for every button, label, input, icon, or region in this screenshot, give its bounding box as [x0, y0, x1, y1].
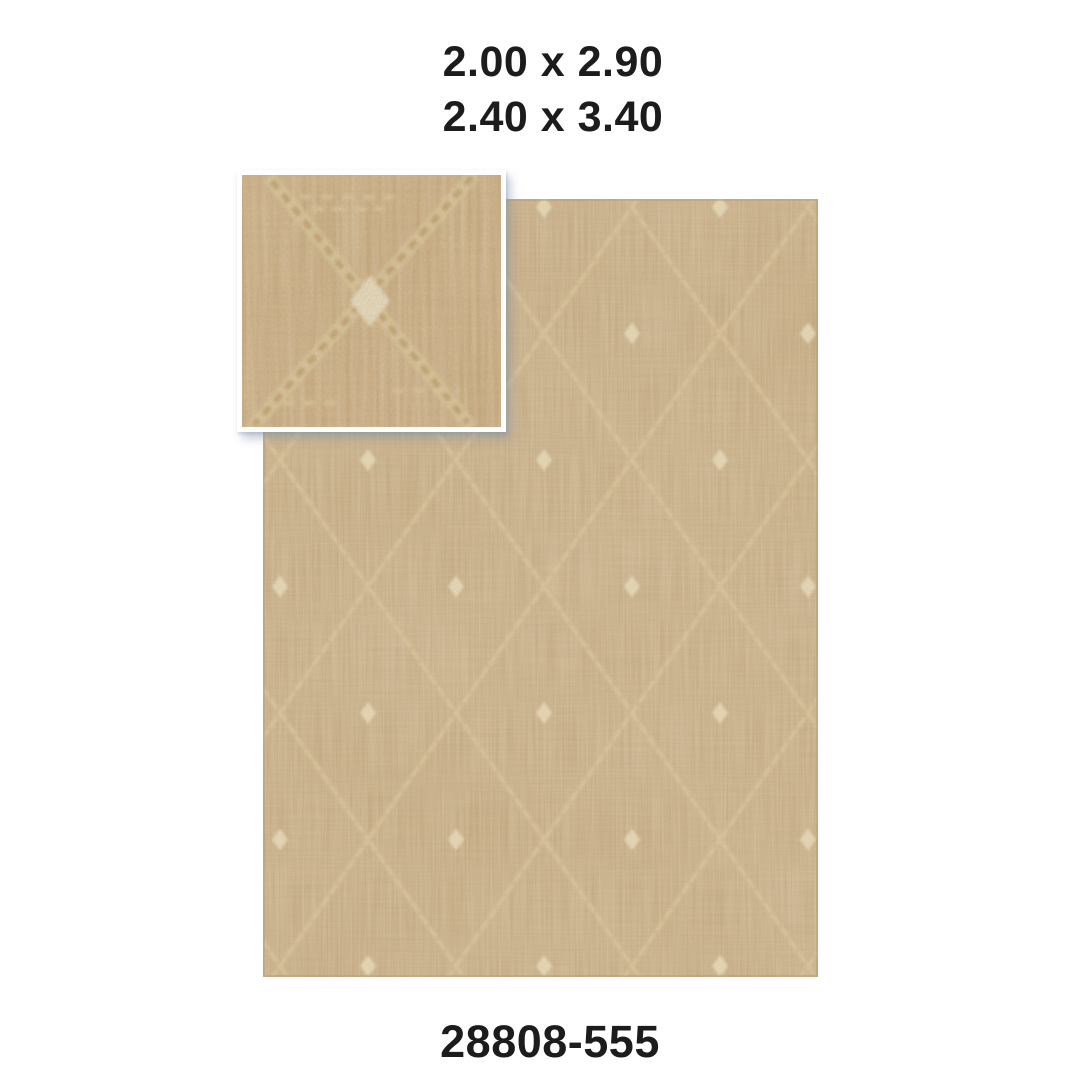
texture-detail-inset [237, 170, 506, 432]
product-code: 28808-555 [10, 1017, 1080, 1067]
size-dimension-line-1: 2.00 x 2.90 [13, 35, 1080, 90]
catalog-page: 2.00 x 2.90 2.40 x 3.40 [0, 0, 1080, 1080]
size-dimensions: 2.00 x 2.90 2.40 x 3.40 [13, 35, 1080, 145]
size-dimension-line-2: 2.40 x 3.40 [13, 90, 1080, 145]
inset-texture-svg [242, 175, 501, 427]
